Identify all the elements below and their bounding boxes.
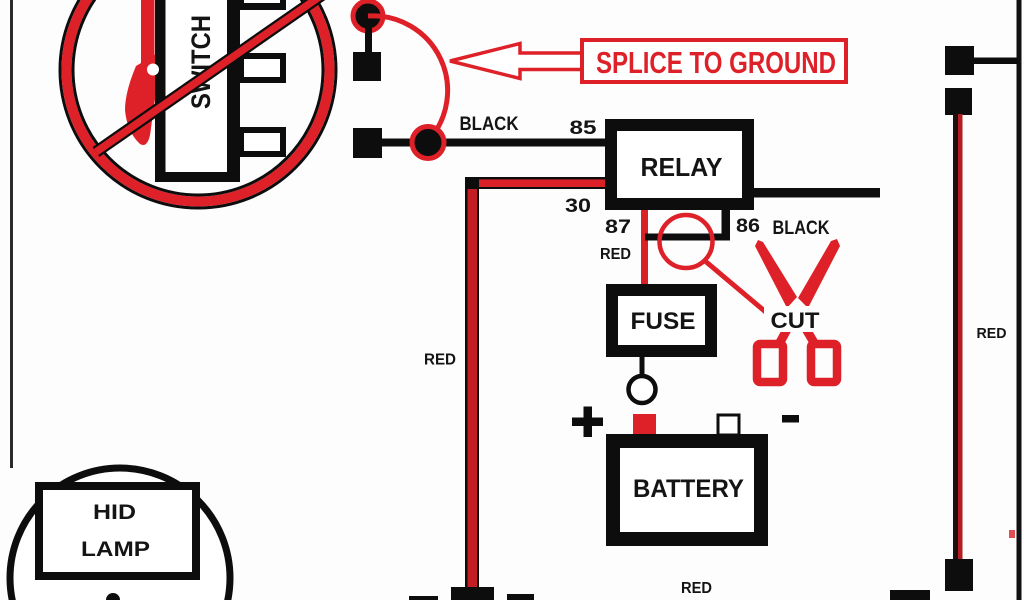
svg-text:BLACK: BLACK	[460, 114, 519, 135]
svg-text:30: 30	[565, 196, 591, 217]
svg-text:RED: RED	[600, 246, 631, 263]
svg-text:HID: HID	[93, 501, 136, 524]
svg-text:BATTERY: BATTERY	[633, 475, 744, 503]
svg-text:BLACK: BLACK	[773, 218, 830, 239]
svg-text:SPLICE TO GROUND: SPLICE TO GROUND	[596, 45, 836, 80]
svg-text:LAMP: LAMP	[81, 538, 150, 561]
svg-text:RED: RED	[681, 580, 712, 597]
svg-text:RED: RED	[424, 352, 456, 369]
svg-text:CUT: CUT	[771, 308, 821, 333]
svg-text:86: 86	[736, 216, 760, 237]
svg-text:85: 85	[570, 118, 598, 139]
svg-text:RED: RED	[977, 325, 1007, 342]
svg-text:FUSE: FUSE	[631, 308, 696, 335]
svg-text:RELAY: RELAY	[641, 152, 723, 182]
svg-text:SWITCH: SWITCH	[186, 15, 216, 109]
svg-text:87: 87	[605, 217, 631, 238]
